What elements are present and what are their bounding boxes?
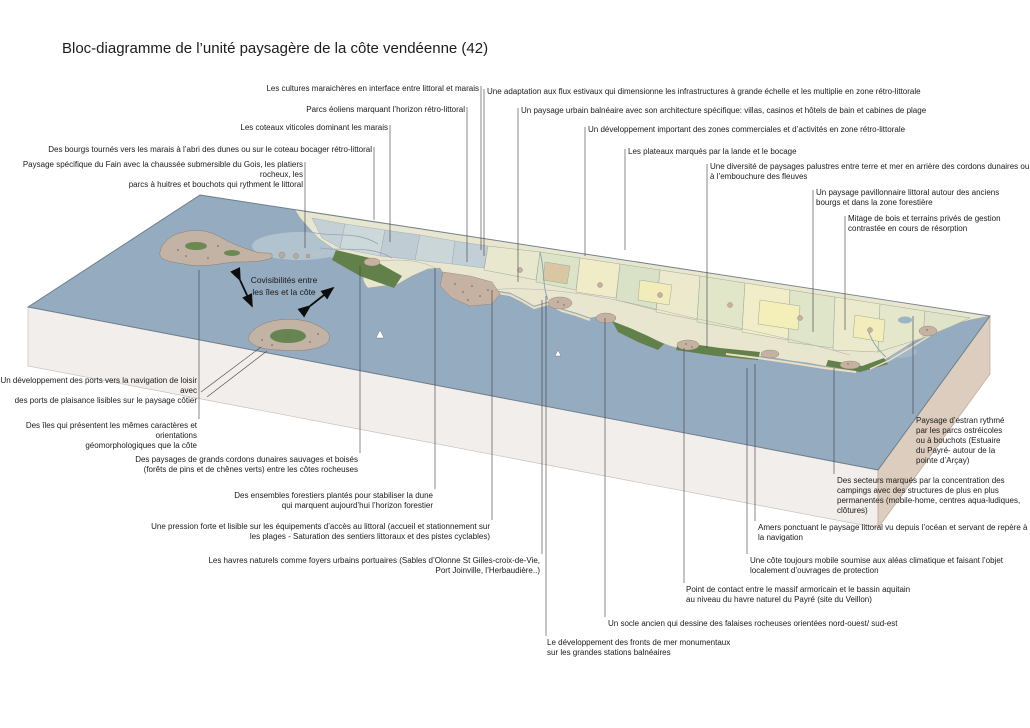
annotation-paysage-urbain: Un paysage urbain balnéaire avec son arc…: [521, 106, 926, 116]
annotation-socle-ancien: Un socle ancien qui dessine des falaises…: [608, 619, 898, 629]
annotation-secteurs-campings: Des secteurs marqués par la concentratio…: [837, 476, 1020, 516]
bloc-diagramme-page: Bloc-diagramme de l’unité paysagère de l…: [0, 0, 1030, 728]
annotation-parcs-eoliens: Parcs éoliens marquant l’horizon rétro-l…: [306, 105, 465, 115]
annotation-point-contact: Point de contact entre le massif armoric…: [686, 585, 910, 605]
annotation-estran: Paysage d’estran rythmé par les parcs os…: [916, 416, 1005, 466]
annotation-dev-ports: Un développement des ports vers la navig…: [0, 376, 197, 406]
annotation-diversite-palustres: Une diversité de paysages palustres entr…: [710, 162, 1029, 182]
annotation-pression-acces: Une pression forte et lisible sur les éq…: [151, 522, 490, 542]
annotation-fronts-de-mer: Le développement des fronts de mer monum…: [547, 638, 730, 658]
annotation-fain-gois: Paysage spécifique du Fain avec la chaus…: [0, 160, 303, 190]
annotation-adaptation-flux: Une adaptation aux flux estivaux qui dim…: [487, 87, 921, 97]
annotation-des-iles: Des îles qui présentent les mêmes caract…: [0, 421, 197, 451]
annotation-cordons-dunaires: Des paysages de grands cordons dunaires …: [135, 455, 358, 475]
annotation-plateaux: Les plateaux marqués par la lande et le …: [628, 147, 797, 157]
annotation-cultures-maraicheres: Les cultures maraichères en interface en…: [266, 84, 479, 94]
annotation-coteaux-viticoles: Les coteaux viticoles dominant les marai…: [240, 123, 388, 133]
annotation-bourgs-tournes: Des bourgs tournés vers les marais à l’a…: [48, 145, 372, 155]
annotation-mitage: Mitage de bois et terrains privés de ges…: [848, 214, 1001, 234]
annotation-cote-mobile: Une côte toujours mobile soumise aux alé…: [750, 556, 1003, 576]
annotation-amers: Amers ponctuant le paysage littoral vu d…: [758, 523, 1028, 543]
annotation-dev-commercial: Un développement important des zones com…: [588, 125, 905, 135]
map-label-covisibilites: Covisibilités entre les îles et la côte: [242, 274, 326, 298]
annotation-ensembles-forestiers: Des ensembles forestiers plantés pour st…: [234, 491, 433, 511]
annotation-pavillonnaire: Un paysage pavillonnaire littoral autour…: [816, 188, 999, 208]
annotation-havres-naturels: Les havres naturels comme foyers urbains…: [208, 556, 540, 576]
